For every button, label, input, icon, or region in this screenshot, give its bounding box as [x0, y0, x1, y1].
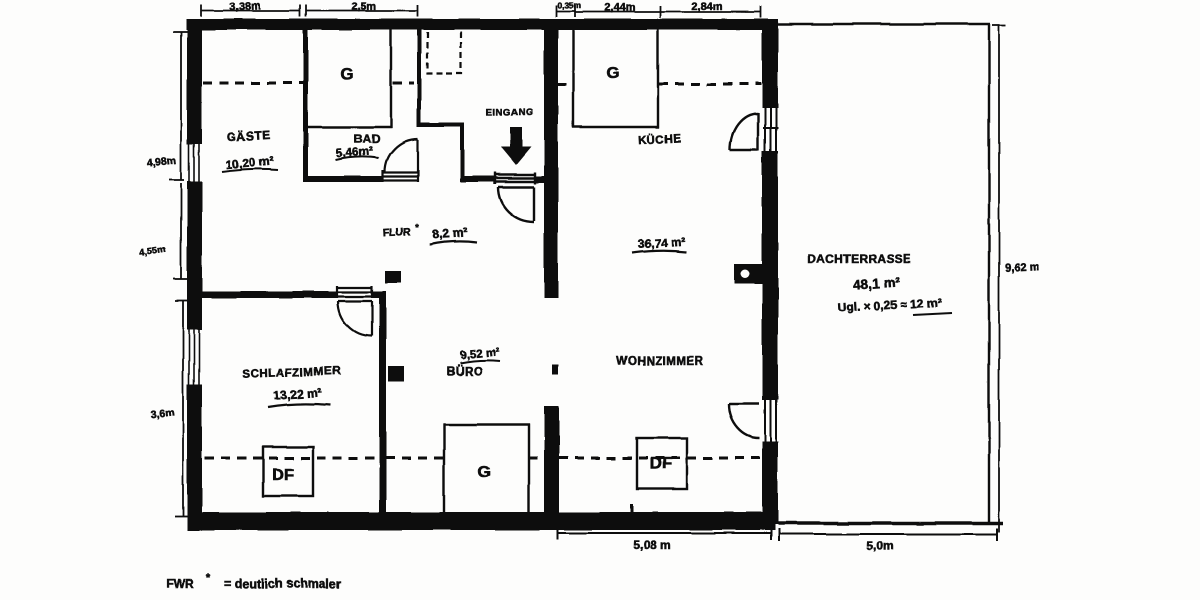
svg-text:13,22 m²: 13,22 m² [273, 385, 322, 402]
svg-text:FWR: FWR [166, 577, 194, 591]
svg-text:4,55m: 4,55m [139, 244, 167, 259]
svg-text:G: G [340, 64, 353, 83]
svg-text:G: G [477, 462, 490, 481]
svg-text:9,62 m: 9,62 m [1004, 261, 1039, 275]
svg-text:= deutlich schmaler: = deutlich schmaler [224, 577, 341, 591]
svg-text:8,2 m²: 8,2 m² [432, 225, 468, 241]
svg-text:*: * [415, 222, 419, 232]
svg-text:KÜCHE: KÜCHE [638, 132, 682, 147]
svg-text:9,52 m²: 9,52 m² [459, 346, 500, 361]
svg-text:EINGANG: EINGANG [486, 107, 534, 118]
svg-text:BÜRO: BÜRO [447, 365, 483, 378]
svg-text:SCHLAFZIMMER: SCHLAFZIMMER [243, 365, 342, 380]
svg-text:2,44m: 2,44m [604, 2, 635, 14]
svg-text:G: G [606, 63, 619, 82]
svg-text:*: * [206, 572, 211, 584]
svg-text:4,98m: 4,98m [146, 154, 177, 169]
svg-text:3,38m: 3,38m [229, 0, 261, 13]
svg-text:WOHNZIMMER: WOHNZIMMER [617, 356, 704, 368]
svg-text:FLUR: FLUR [383, 226, 412, 239]
svg-text:3,6m: 3,6m [150, 407, 175, 421]
svg-text:0,35m: 0,35m [557, 0, 582, 10]
svg-text:48,1 m²: 48,1 m² [853, 274, 901, 292]
svg-text:5,08 m: 5,08 m [633, 538, 670, 552]
svg-text:DF: DF [272, 465, 295, 484]
svg-text:36,74 m²: 36,74 m² [637, 235, 686, 251]
svg-text:2,84m: 2,84m [691, 1, 722, 13]
svg-text:2,5m: 2,5m [351, 1, 376, 13]
svg-text:Ugl. × 0,25 ≈ 12 m²: Ugl. × 0,25 ≈ 12 m² [837, 295, 942, 314]
svg-text:BAD: BAD [354, 132, 380, 146]
svg-text:5,0m: 5,0m [866, 539, 893, 553]
svg-text:DACHTERRASSE: DACHTERRASSE [807, 252, 911, 266]
svg-text:GÄSTE: GÄSTE [226, 127, 271, 144]
